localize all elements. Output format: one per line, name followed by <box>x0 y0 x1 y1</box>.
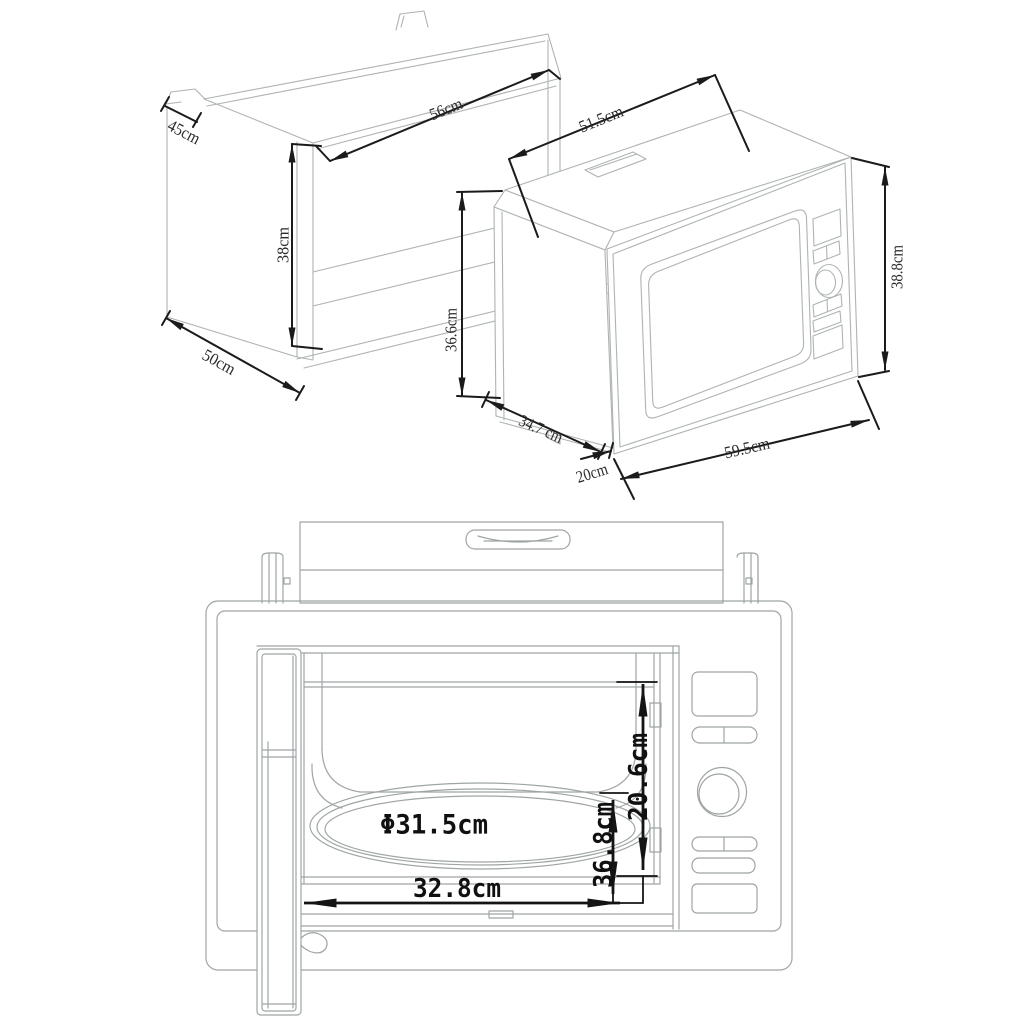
microwave-trim-depth-dim-label: 20cm <box>574 459 610 487</box>
installation-diagram-canvas: 45cm 56cm 38cm 50cm <box>0 0 1024 1024</box>
microwave-trim-height-dim-label: 38.8cm <box>888 245 907 289</box>
front-control-panel <box>692 672 757 913</box>
microwave-front-view-drawing: Φ31.5cm 20.6cm 36.8cm 32.8cm <box>206 522 792 1015</box>
cabinet-bottom-depth-dim-label: 50cm <box>199 345 239 379</box>
door-latch-slot-upper <box>650 703 661 727</box>
turntable-diameter-dim-label: Φ31.5cm <box>380 810 488 841</box>
microwave-body-width-dim-label: 51.5cm <box>576 102 626 137</box>
display-screen <box>692 672 757 716</box>
cavity-width-dim-label: 32.8cm <box>413 874 501 904</box>
door-latch-hook <box>301 933 327 953</box>
front-open-door <box>257 649 327 1015</box>
front-mounting-panel <box>262 522 758 603</box>
microwave-trim-width-dim-label: 59.5cm <box>722 434 771 463</box>
button-large <box>692 884 757 913</box>
cavity-height-dim-label: 20.6cm <box>624 733 654 821</box>
front-view-dimensions: Φ31.5cm 20.6cm 36.8cm 32.8cm <box>304 682 657 904</box>
door-width-dim-label: 36.8cm <box>589 802 619 888</box>
microwave-body-height-dim-label: 36.6cm <box>442 308 461 352</box>
cabinet-niche-width-dim-label: 56cm <box>427 94 466 124</box>
button-bar <box>692 858 755 873</box>
door-latch-slot-lower <box>650 828 661 852</box>
cabinet-niche-height-dim-label: 38cm <box>274 227 293 263</box>
microwave-iso-drawing: 51.5cm 36.6cm 34.7 cm 20cm 59.5cm 38.8cm <box>442 75 907 499</box>
front-top-handle <box>466 530 570 549</box>
